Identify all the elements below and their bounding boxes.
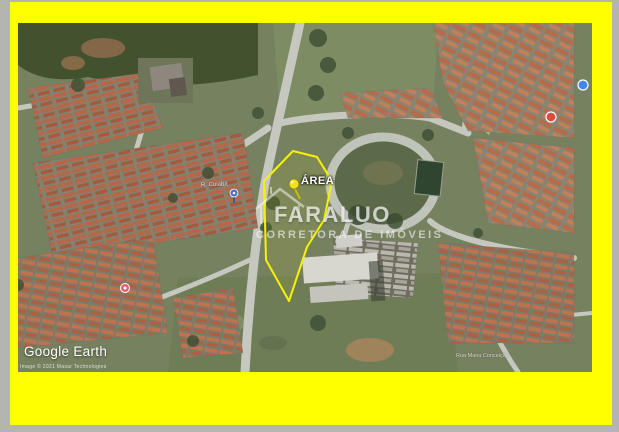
place-dot-blue-icon bbox=[578, 80, 588, 90]
google-earth-logo: Google Earth bbox=[24, 344, 107, 359]
satellite-map: ÁREA FARALUO CORRETORA DE IMÓVEIS R. Cui… bbox=[18, 23, 592, 372]
area-annotation-label: ÁREA bbox=[301, 175, 334, 187]
satellite-map-canvas bbox=[18, 23, 592, 372]
imagery-attribution: Image © 2021 Maxar Technologies bbox=[20, 364, 107, 370]
listing-photo-page: ÁREA FARALUO CORRETORA DE IMÓVEIS R. Cui… bbox=[0, 0, 619, 432]
place-dot-red-icon bbox=[546, 112, 556, 122]
watermark-brand-name: FARALUO bbox=[274, 202, 391, 228]
street-label: R. Cuiabá bbox=[201, 182, 228, 189]
street-label: Rua Maria Conceição bbox=[456, 353, 509, 359]
watermark-tagline: CORRETORA DE IMÓVEIS bbox=[256, 229, 444, 241]
place-dot-pink-icon bbox=[121, 284, 130, 293]
